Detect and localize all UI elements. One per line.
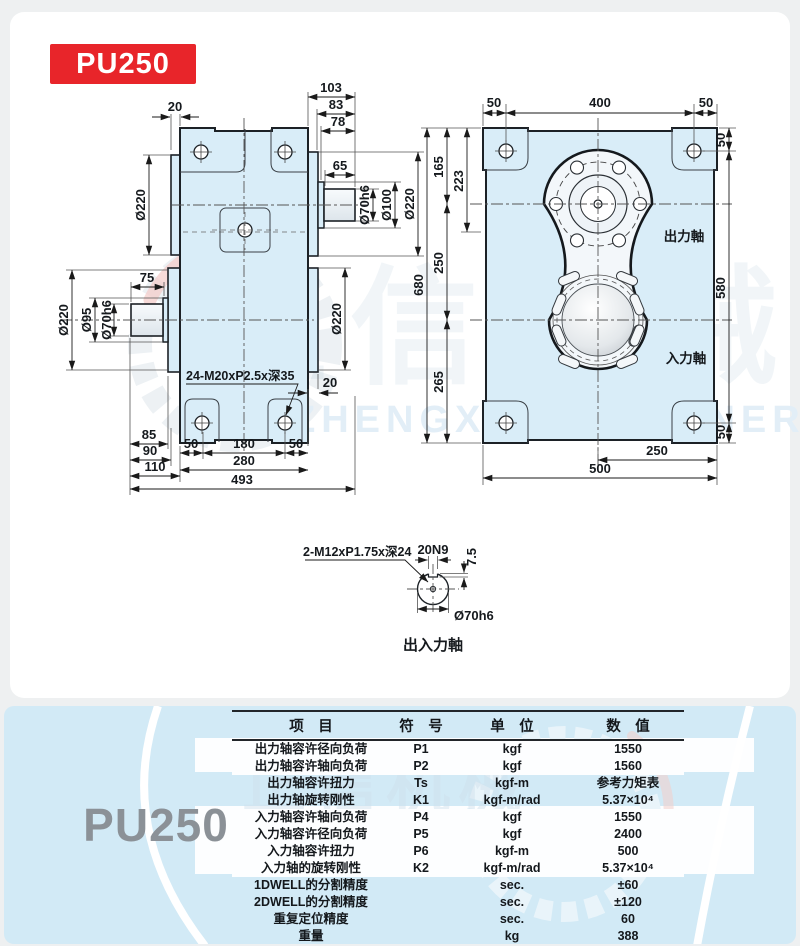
cell-item: 入力轴容许径向负荷 [232, 826, 390, 843]
cell-item: 出力轴旋转刚性 [232, 792, 390, 809]
cell-item: 2DWELL的分割精度 [232, 894, 390, 911]
tap-note: 2-M12xP1.75x深24 [303, 544, 411, 559]
cell-unit: kgf-m/rad [452, 792, 572, 809]
cell-unit: kgf-m [452, 775, 572, 792]
table-row: 入力轴容许扭力P6kgf-m500 [232, 843, 684, 860]
table-row: 1DWELL的分割精度sec.±60 [232, 877, 684, 894]
cell-value: 1560 [572, 758, 684, 775]
cell-value: 388 [572, 928, 684, 944]
cell-unit: kgf [452, 809, 572, 826]
cell-item: 入力轴容许轴向负荷 [232, 809, 390, 826]
dim-label: 500 [589, 461, 611, 476]
cell-value: 5.37×10⁴ [572, 792, 684, 809]
dim-label: Ø220 [329, 303, 344, 335]
flange-bolt-hole [613, 234, 626, 247]
flange-bolt-hole [571, 234, 584, 247]
dim-label: 83 [329, 97, 343, 112]
dim-label: Ø220 [402, 188, 417, 220]
dim-label: 680 [411, 274, 426, 296]
dim-label: 20 [323, 375, 337, 390]
table-row: 重复定位精度sec.60 [232, 911, 684, 928]
cell-symbol: Ts [390, 775, 452, 792]
spec-panel: 正信机械 ZHENGXIN MACHINERY PU250 项 目 符 号 单 … [4, 706, 796, 944]
dim-label: Ø70h6 [454, 608, 494, 623]
col-header-unit: 单 位 [452, 715, 572, 736]
dim-label: 78 [331, 114, 345, 129]
cell-unit: kgf [452, 826, 572, 843]
dim-label: 50 [713, 133, 728, 147]
output-shaft-label: 出力軸 [664, 228, 705, 244]
cell-value: ±120 [572, 894, 684, 911]
cell-value: 500 [572, 843, 684, 860]
col-header-item: 项 目 [232, 715, 390, 736]
dim-label: 180 [233, 436, 255, 451]
spec-table-header: 项 目 符 号 单 位 数 值 [232, 712, 684, 741]
cell-symbol: K2 [390, 860, 452, 877]
flange-bolt-hole [571, 161, 584, 174]
table-row: 重量kg388 [232, 928, 684, 944]
cell-symbol: P2 [390, 758, 452, 775]
table-row: 入力轴容许径向负荷P5kgf2400 [232, 826, 684, 843]
dim-label: 20 [168, 99, 182, 114]
cell-value: 参考力矩表 [572, 775, 684, 792]
dim-label: 65 [333, 158, 347, 173]
tap-note: 24-M20xP2.5x深35 [186, 368, 294, 383]
dim-label: 493 [231, 472, 253, 487]
cell-item: 入力轴容许扭力 [232, 843, 390, 860]
shaft-detail: 2-M12xP1.75x深24 20N9 7.5 Ø70h6 出入力軸 [303, 542, 494, 654]
cell-item: 出力轴容许轴向负荷 [232, 758, 390, 775]
cell-symbol: P1 [390, 741, 452, 758]
dim-label: 110 [145, 459, 166, 474]
cell-value: 5.37×10⁴ [572, 860, 684, 877]
dim-label: 165 [431, 156, 446, 178]
detail-caption: 出入力軸 [403, 636, 463, 654]
dim-label: Ø70h6 [99, 300, 114, 340]
dim-label: Ø100 [379, 189, 394, 221]
cell-value: 1550 [572, 741, 684, 758]
dim-label: 50 [487, 95, 501, 110]
table-row: 出力轴容许扭力Tskgf-m参考力矩表 [232, 775, 684, 792]
dim-label: 103 [320, 80, 342, 95]
dim-label: Ø220 [56, 304, 71, 336]
dim-label: 580 [713, 277, 728, 299]
table-row: 入力轴的旋转刚性K2kgf-m/rad5.37×10⁴ [232, 860, 684, 877]
flange-bolt-hole [613, 161, 626, 174]
cell-unit: sec. [452, 911, 572, 928]
cell-unit: sec. [452, 877, 572, 894]
model-badge: PU250 [50, 44, 196, 84]
page: { "badge": { "label": "PU250" }, "waterm… [0, 0, 800, 946]
cell-symbol: P6 [390, 843, 452, 860]
dim-label: 90 [143, 443, 157, 458]
dim-label: 75 [140, 270, 154, 285]
cell-item: 出力轴容许径向负荷 [232, 741, 390, 758]
dim-label: 85 [142, 427, 156, 442]
cell-item: 重复定位精度 [232, 911, 390, 928]
cell-item: 出力轴容许扭力 [232, 775, 390, 792]
table-row: 2DWELL的分割精度sec.±120 [232, 894, 684, 911]
dim-label: 50 [713, 425, 728, 439]
table-row: 出力轴容许径向负荷P1kgf1550 [232, 741, 684, 758]
cell-value: 60 [572, 911, 684, 928]
cell-unit: sec. [452, 894, 572, 911]
input-shaft-label: 入力軸 [666, 350, 707, 366]
dim-label: 250 [431, 252, 446, 274]
cell-unit: kgf-m [452, 843, 572, 860]
spec-table: 项 目 符 号 单 位 数 值 出力轴容许径向负荷P1kgf1550 出力轴容许… [232, 710, 684, 944]
cell-item: 入力轴的旋转刚性 [232, 860, 390, 877]
table-row: 出力轴旋转刚性K1kgf-m/rad5.37×10⁴ [232, 792, 684, 809]
dim-label: 20N9 [417, 542, 448, 557]
col-header-value: 数 值 [572, 715, 684, 736]
cell-symbol: P4 [390, 809, 452, 826]
cell-unit: kgf-m/rad [452, 860, 572, 877]
table-row: 入力轴容许轴向负荷P4kgf1550 [232, 809, 684, 826]
right-upper-plate [308, 152, 318, 256]
cell-symbol: P5 [390, 826, 452, 843]
engineering-drawing: 正信机械 ZHENGXIN MACHINERY [10, 12, 800, 712]
col-header-symbol: 符 号 [390, 715, 452, 736]
cell-unit: kg [452, 928, 572, 944]
cell-item: 重量 [232, 928, 390, 944]
dim-label: 250 [646, 443, 668, 458]
keyway [429, 574, 438, 577]
dim-label: Ø70h6 [357, 185, 372, 225]
dim-label: 280 [233, 453, 255, 468]
dim-label: 7.5 [464, 548, 479, 566]
table-row: 出力轴容许轴向负荷P2kgf1560 [232, 758, 684, 775]
dim-label: 400 [589, 95, 611, 110]
cell-unit: kgf [452, 758, 572, 775]
cell-symbol: K1 [390, 792, 452, 809]
dim-label: Ø220 [133, 189, 148, 221]
model-title: PU250 [66, 798, 246, 852]
cell-unit: kgf [452, 741, 572, 758]
dim-label: 50 [184, 436, 198, 451]
dim-label: 223 [451, 170, 466, 192]
dim-label: 50 [289, 436, 303, 451]
cell-value: ±60 [572, 877, 684, 894]
drawing-panel: 正信机械 ZHENGXIN MACHINERY [10, 12, 790, 698]
cell-value: 2400 [572, 826, 684, 843]
dim-label: Ø95 [79, 308, 94, 333]
cell-item: 1DWELL的分割精度 [232, 877, 390, 894]
cell-value: 1550 [572, 809, 684, 826]
dim-label: 50 [699, 95, 713, 110]
dim-label: 265 [431, 371, 446, 393]
